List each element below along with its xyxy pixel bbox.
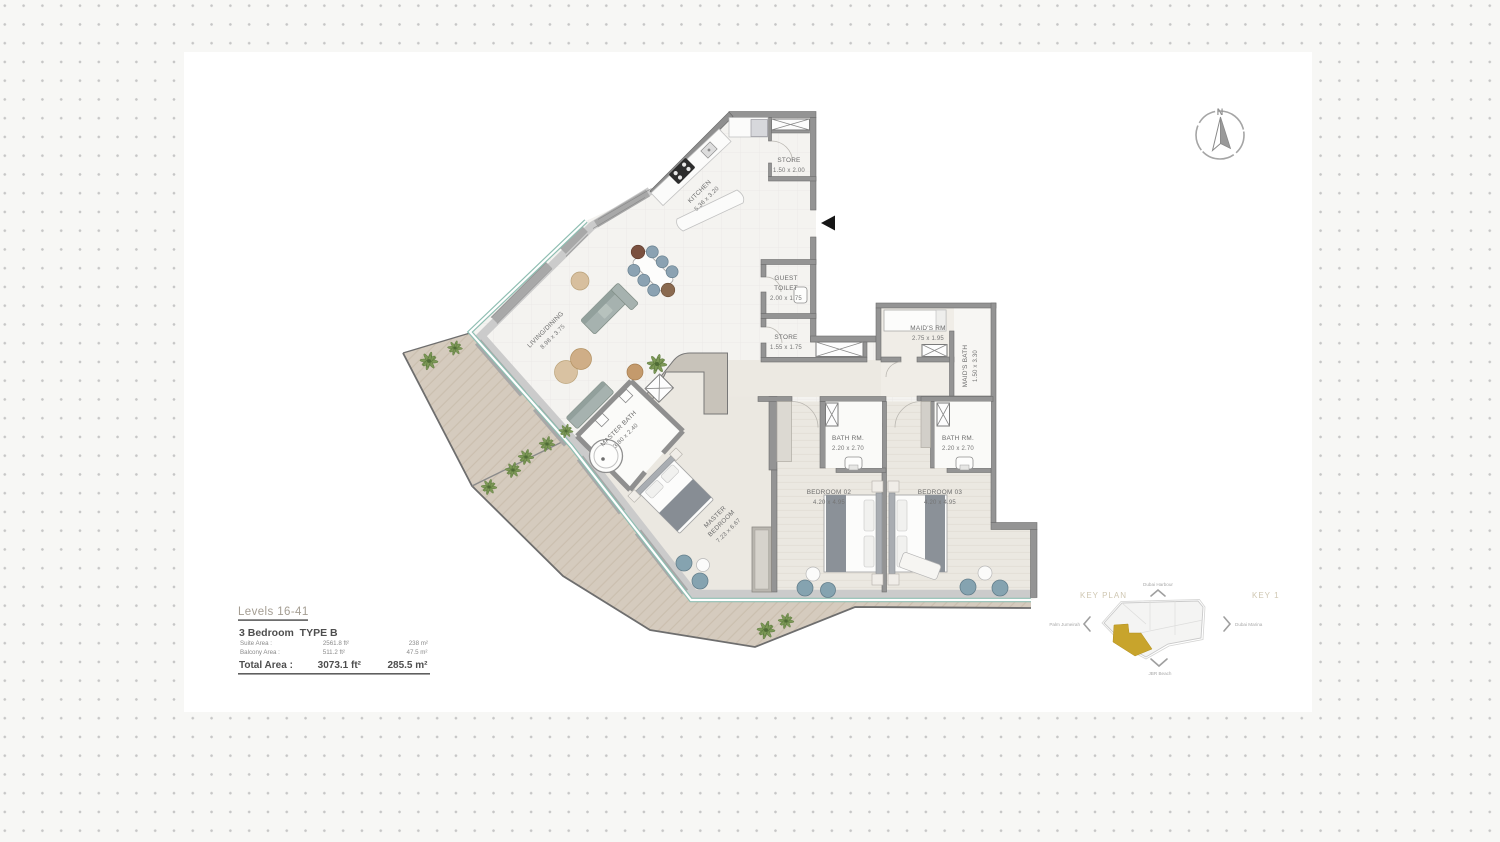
svg-text:2.75 x 1.95: 2.75 x 1.95 xyxy=(912,336,944,342)
svg-text:KEY PLAN: KEY PLAN xyxy=(1080,591,1127,600)
svg-text:STORE: STORE xyxy=(777,157,800,164)
svg-text:BATH RM.: BATH RM. xyxy=(832,435,864,442)
svg-text:MAID'S RM: MAID'S RM xyxy=(910,325,945,332)
svg-text:1.55 x 1.75: 1.55 x 1.75 xyxy=(770,345,802,351)
svg-text:Suite Area :: Suite Area : xyxy=(240,640,272,647)
svg-text:BEDROOM 02: BEDROOM 02 xyxy=(807,489,852,496)
svg-text:BATH RM.: BATH RM. xyxy=(942,435,974,442)
svg-text:Total Area :: Total Area : xyxy=(239,660,293,671)
svg-text:KEY 1: KEY 1 xyxy=(1252,591,1280,600)
svg-text:JBR Beach: JBR Beach xyxy=(1149,671,1172,676)
svg-text:Dubai Harbour: Dubai Harbour xyxy=(1143,582,1173,587)
svg-text:2.00 x 1.75: 2.00 x 1.75 xyxy=(770,296,802,302)
svg-text:N: N xyxy=(1217,107,1224,117)
svg-text:3 Bedroom TYPE B: 3 Bedroom TYPE B xyxy=(239,627,338,639)
svg-text:285.5 m²: 285.5 m² xyxy=(387,660,428,671)
svg-text:2.20 x 2.70: 2.20 x 2.70 xyxy=(832,446,864,452)
svg-text:MAID'S BATH: MAID'S BATH xyxy=(962,345,969,388)
svg-text:2561.8 ft²: 2561.8 ft² xyxy=(323,640,349,647)
svg-text:BEDROOM 03: BEDROOM 03 xyxy=(918,489,963,496)
svg-text:1.50 x 3.30: 1.50 x 3.30 xyxy=(973,350,979,382)
svg-text:3073.1 ft²: 3073.1 ft² xyxy=(318,660,362,671)
svg-text:511.2 ft²: 511.2 ft² xyxy=(323,649,345,656)
svg-text:Dubai Marina: Dubai Marina xyxy=(1235,622,1263,627)
svg-text:4.20 x 4.95: 4.20 x 4.95 xyxy=(813,500,845,506)
svg-text:2.20 x 2.70: 2.20 x 2.70 xyxy=(942,446,974,452)
svg-text:47.5 m²: 47.5 m² xyxy=(407,649,428,656)
svg-text:4.20 x 4.95: 4.20 x 4.95 xyxy=(924,500,956,506)
svg-text:Balcony Area :: Balcony Area : xyxy=(240,649,280,656)
svg-text:Palm Jumeirah: Palm Jumeirah xyxy=(1049,622,1080,627)
svg-text:Levels 16-41: Levels 16-41 xyxy=(238,606,309,618)
svg-text:TOILET: TOILET xyxy=(774,285,798,292)
svg-text:1.50 x 2.00: 1.50 x 2.00 xyxy=(773,168,805,174)
svg-text:STORE: STORE xyxy=(774,334,797,341)
svg-text:GUEST: GUEST xyxy=(774,275,797,282)
svg-text:238 m²: 238 m² xyxy=(409,640,428,647)
